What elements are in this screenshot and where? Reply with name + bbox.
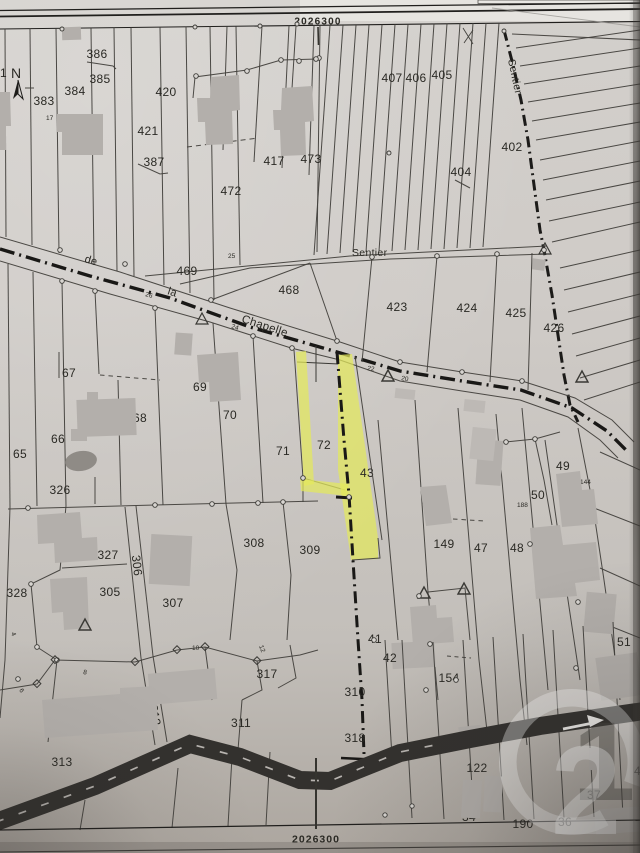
svg-text:385: 385 [90, 72, 111, 86]
svg-text:188: 188 [517, 502, 528, 509]
svg-text:25: 25 [228, 253, 236, 260]
svg-text:67: 67 [62, 366, 76, 380]
svg-text:305: 305 [100, 585, 121, 599]
svg-text:307: 307 [163, 596, 184, 610]
svg-text:306: 306 [129, 554, 145, 576]
svg-text:326: 326 [50, 483, 71, 497]
svg-text:405: 405 [432, 68, 453, 82]
svg-text:421: 421 [138, 124, 159, 138]
svg-text:417: 417 [264, 154, 285, 168]
svg-text:472: 472 [221, 184, 242, 198]
svg-text:386: 386 [87, 47, 108, 61]
svg-text:47: 47 [474, 541, 488, 555]
svg-text:17: 17 [46, 115, 54, 122]
svg-text:N: N [11, 65, 21, 81]
svg-text:383: 383 [34, 94, 55, 108]
svg-text:384: 384 [65, 84, 86, 98]
svg-text:149: 149 [434, 537, 455, 551]
svg-text:404: 404 [451, 165, 472, 179]
svg-text:420: 420 [156, 85, 177, 99]
svg-text:71: 71 [276, 444, 290, 458]
svg-text:66: 66 [51, 432, 65, 446]
svg-text:70: 70 [223, 408, 237, 422]
svg-text:406: 406 [406, 71, 427, 85]
svg-text:402: 402 [502, 140, 523, 154]
svg-text:48: 48 [510, 541, 524, 555]
svg-text:469: 469 [177, 264, 198, 278]
svg-text:65: 65 [13, 447, 27, 461]
svg-text:309: 309 [300, 543, 321, 557]
svg-text:407: 407 [382, 71, 403, 85]
svg-text:50: 50 [531, 488, 545, 502]
svg-text:328: 328 [7, 586, 28, 600]
svg-text:387: 387 [144, 155, 165, 169]
svg-text:468: 468 [279, 283, 300, 297]
svg-text:1: 1 [0, 66, 7, 80]
svg-text:424: 424 [457, 301, 478, 315]
svg-text:423: 423 [387, 300, 408, 314]
svg-text:327: 327 [98, 548, 119, 562]
svg-text:425: 425 [506, 306, 527, 320]
svg-text:308: 308 [244, 536, 265, 550]
svg-text:72: 72 [317, 438, 331, 452]
